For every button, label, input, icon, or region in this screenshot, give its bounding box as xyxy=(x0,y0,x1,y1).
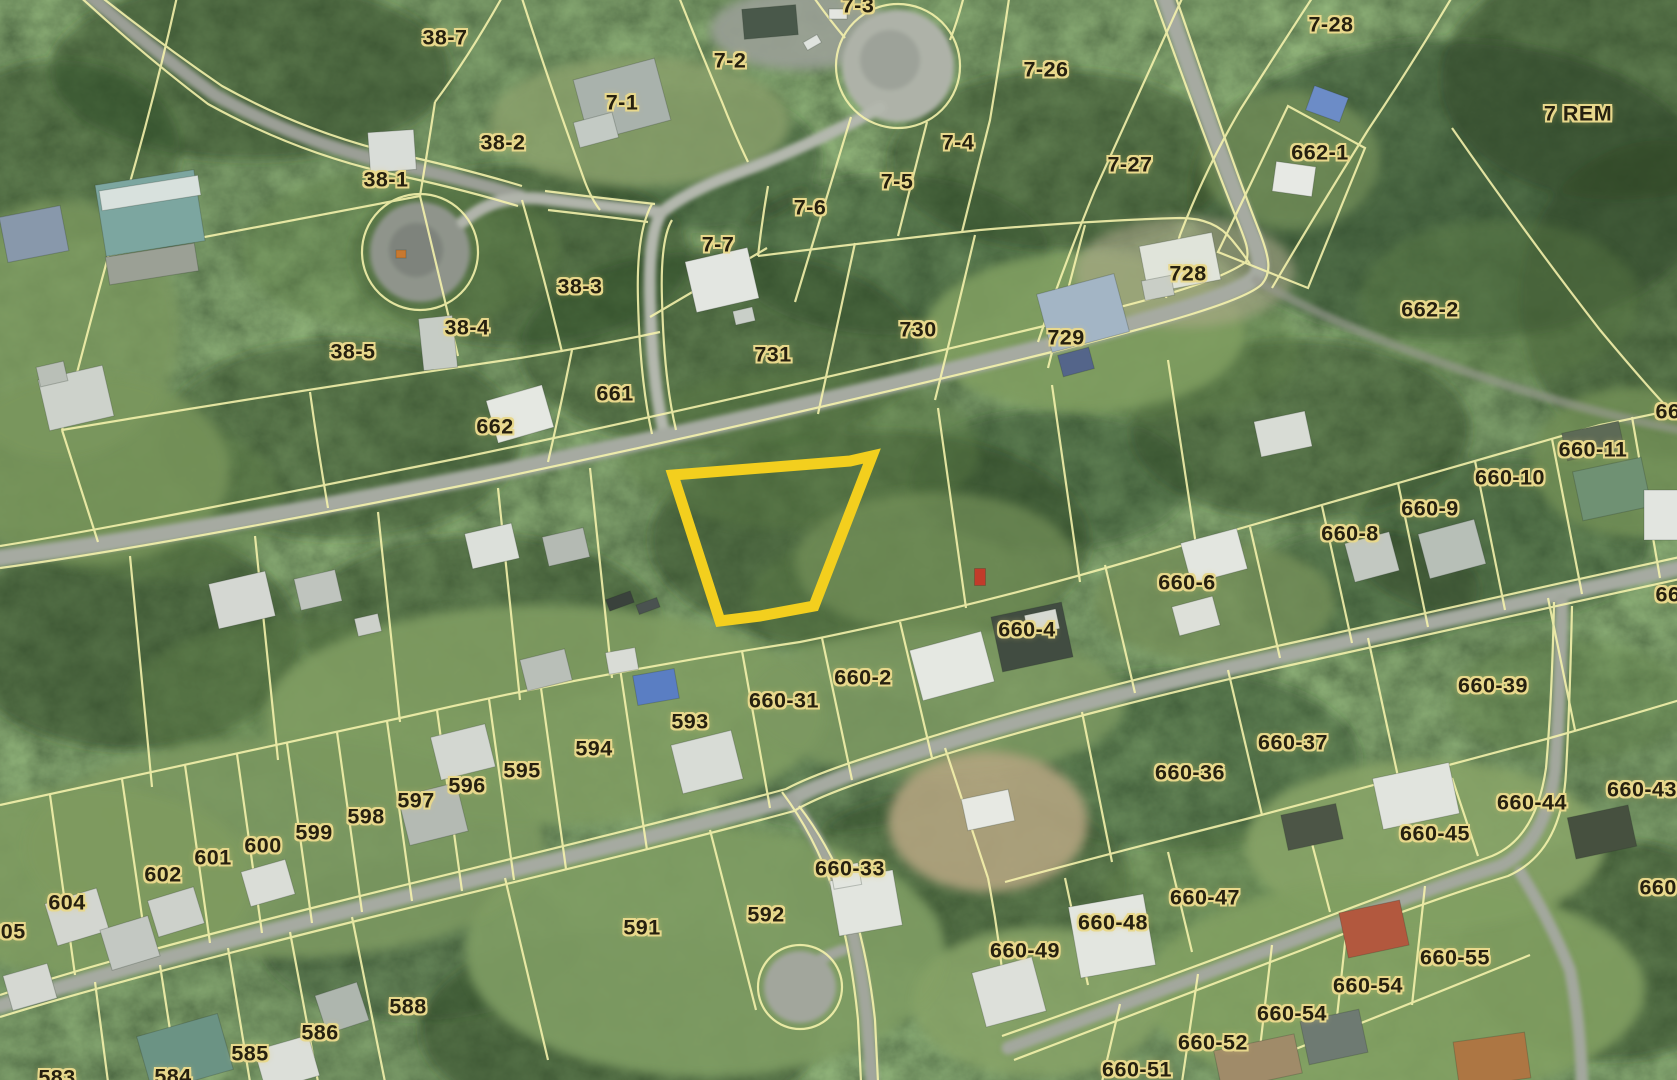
aerial-imagery xyxy=(0,0,1677,1080)
parcel-map[interactable]: 38-77-37-27-267-287 REM7-138-238-17-47-5… xyxy=(0,0,1677,1080)
